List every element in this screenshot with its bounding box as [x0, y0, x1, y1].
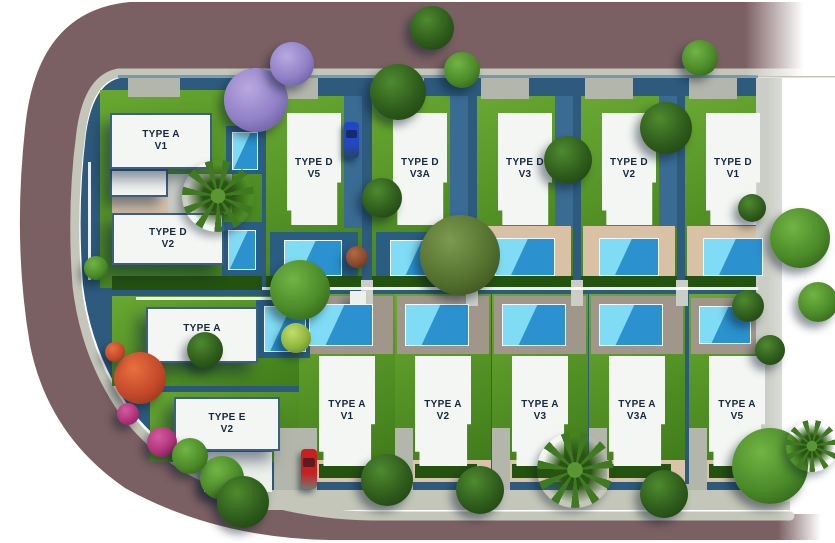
tree: [544, 136, 592, 184]
tree: [420, 215, 500, 295]
villa-label-variant: V1: [155, 141, 168, 153]
palm-tree: [182, 160, 254, 232]
villa-a-v1-nw-wing: [110, 169, 168, 197]
villa-label-type: TYPE D: [610, 157, 648, 169]
villa-label-variant: V2: [437, 411, 450, 423]
highlight: [118, 75, 758, 78]
red-car: [301, 449, 317, 489]
palm-tree: [537, 432, 613, 508]
tree: [640, 102, 692, 154]
tree: [798, 282, 835, 322]
villa-label-type: TYPE A: [521, 399, 559, 411]
villa-label-type: TYPE D: [295, 157, 333, 169]
tree: [270, 260, 330, 320]
villa-a-v3a[interactable]: TYPE AV3A: [609, 356, 665, 466]
villa-label-variant: V3: [519, 169, 532, 181]
path: [128, 77, 180, 97]
tree: [370, 64, 426, 120]
flowering-shrub: [105, 342, 125, 362]
fence: [262, 287, 758, 290]
path: [481, 77, 529, 99]
villa-label-variant: V1: [727, 169, 740, 181]
villa-d-v3[interactable]: TYPE DV3: [498, 113, 552, 225]
villa-a-v1-s[interactable]: TYPE AV1: [319, 356, 375, 466]
villa-label-type: TYPE A: [618, 399, 656, 411]
sidewalk: [258, 490, 790, 510]
flowering-shrub: [117, 403, 139, 425]
path: [585, 77, 633, 99]
villa-label-type: TYPE D: [714, 157, 752, 169]
blue-car-windshield: [346, 130, 357, 138]
tree: [84, 256, 108, 280]
pathLight: [571, 280, 583, 306]
hedge: [112, 276, 262, 290]
villa-label-type: TYPE A: [142, 129, 180, 141]
tree: [755, 335, 785, 365]
villa-label-variant: V5: [731, 411, 744, 423]
villa-label-type: TYPE E: [208, 412, 245, 424]
villa-a-v1-nw[interactable]: TYPE AV1: [110, 113, 212, 169]
tree: [281, 323, 311, 353]
villa-label-type: TYPE A: [718, 399, 756, 411]
villa-label-variant: V2: [162, 239, 175, 251]
villa-label-variant: V5: [308, 169, 321, 181]
palm-tree: [786, 420, 835, 472]
villa-label-type: TYPE D: [506, 157, 544, 169]
site-plan: TYPE AV1TYPE DV2TYPE AV1TYPE EV2TYPE DV5…: [0, 0, 835, 543]
villa-a-v2[interactable]: TYPE AV2: [415, 356, 471, 466]
pool: [405, 304, 469, 346]
tree: [444, 52, 480, 88]
tree: [732, 290, 764, 322]
tree: [456, 466, 504, 514]
pool: [599, 238, 659, 276]
pool: [599, 304, 663, 346]
tree: [362, 178, 402, 218]
tree: [217, 476, 269, 528]
annex: [350, 291, 366, 305]
tree: [770, 208, 830, 268]
sidestrip: [450, 96, 468, 228]
pool: [502, 304, 566, 346]
villa-label-type: TYPE A: [424, 399, 462, 411]
pool: [495, 238, 555, 276]
path: [689, 77, 737, 99]
villa-d-v3a[interactable]: TYPE DV3A: [393, 113, 447, 225]
tree: [187, 332, 223, 368]
villa-label-type: TYPE D: [149, 227, 187, 239]
flowering-shrub: [114, 352, 166, 404]
blue-car: [344, 122, 359, 158]
villa-label-variant: V2: [221, 424, 234, 436]
tree: [682, 40, 718, 76]
red-car-windshield: [303, 458, 315, 467]
villa-d-v5[interactable]: TYPE DV5: [287, 113, 341, 225]
sidestrip: [344, 96, 362, 228]
villa-label-type: TYPE D: [401, 157, 439, 169]
tree: [410, 6, 454, 50]
tree: [361, 454, 413, 506]
villa-label-variant: V3A: [410, 169, 430, 181]
pathLight: [676, 280, 688, 306]
tree: [738, 194, 766, 222]
tree: [172, 438, 208, 474]
pool: [703, 238, 763, 276]
villa-label-variant: V2: [623, 169, 636, 181]
pool: [228, 230, 256, 270]
villa-label-variant: V3A: [627, 411, 647, 423]
villa-label-variant: V3: [534, 411, 547, 423]
tree: [346, 246, 368, 268]
villa-label-type: TYPE A: [328, 399, 366, 411]
tree: [640, 470, 688, 518]
jacaranda-tree: [270, 42, 314, 86]
villa-label-variant: V1: [341, 411, 354, 423]
